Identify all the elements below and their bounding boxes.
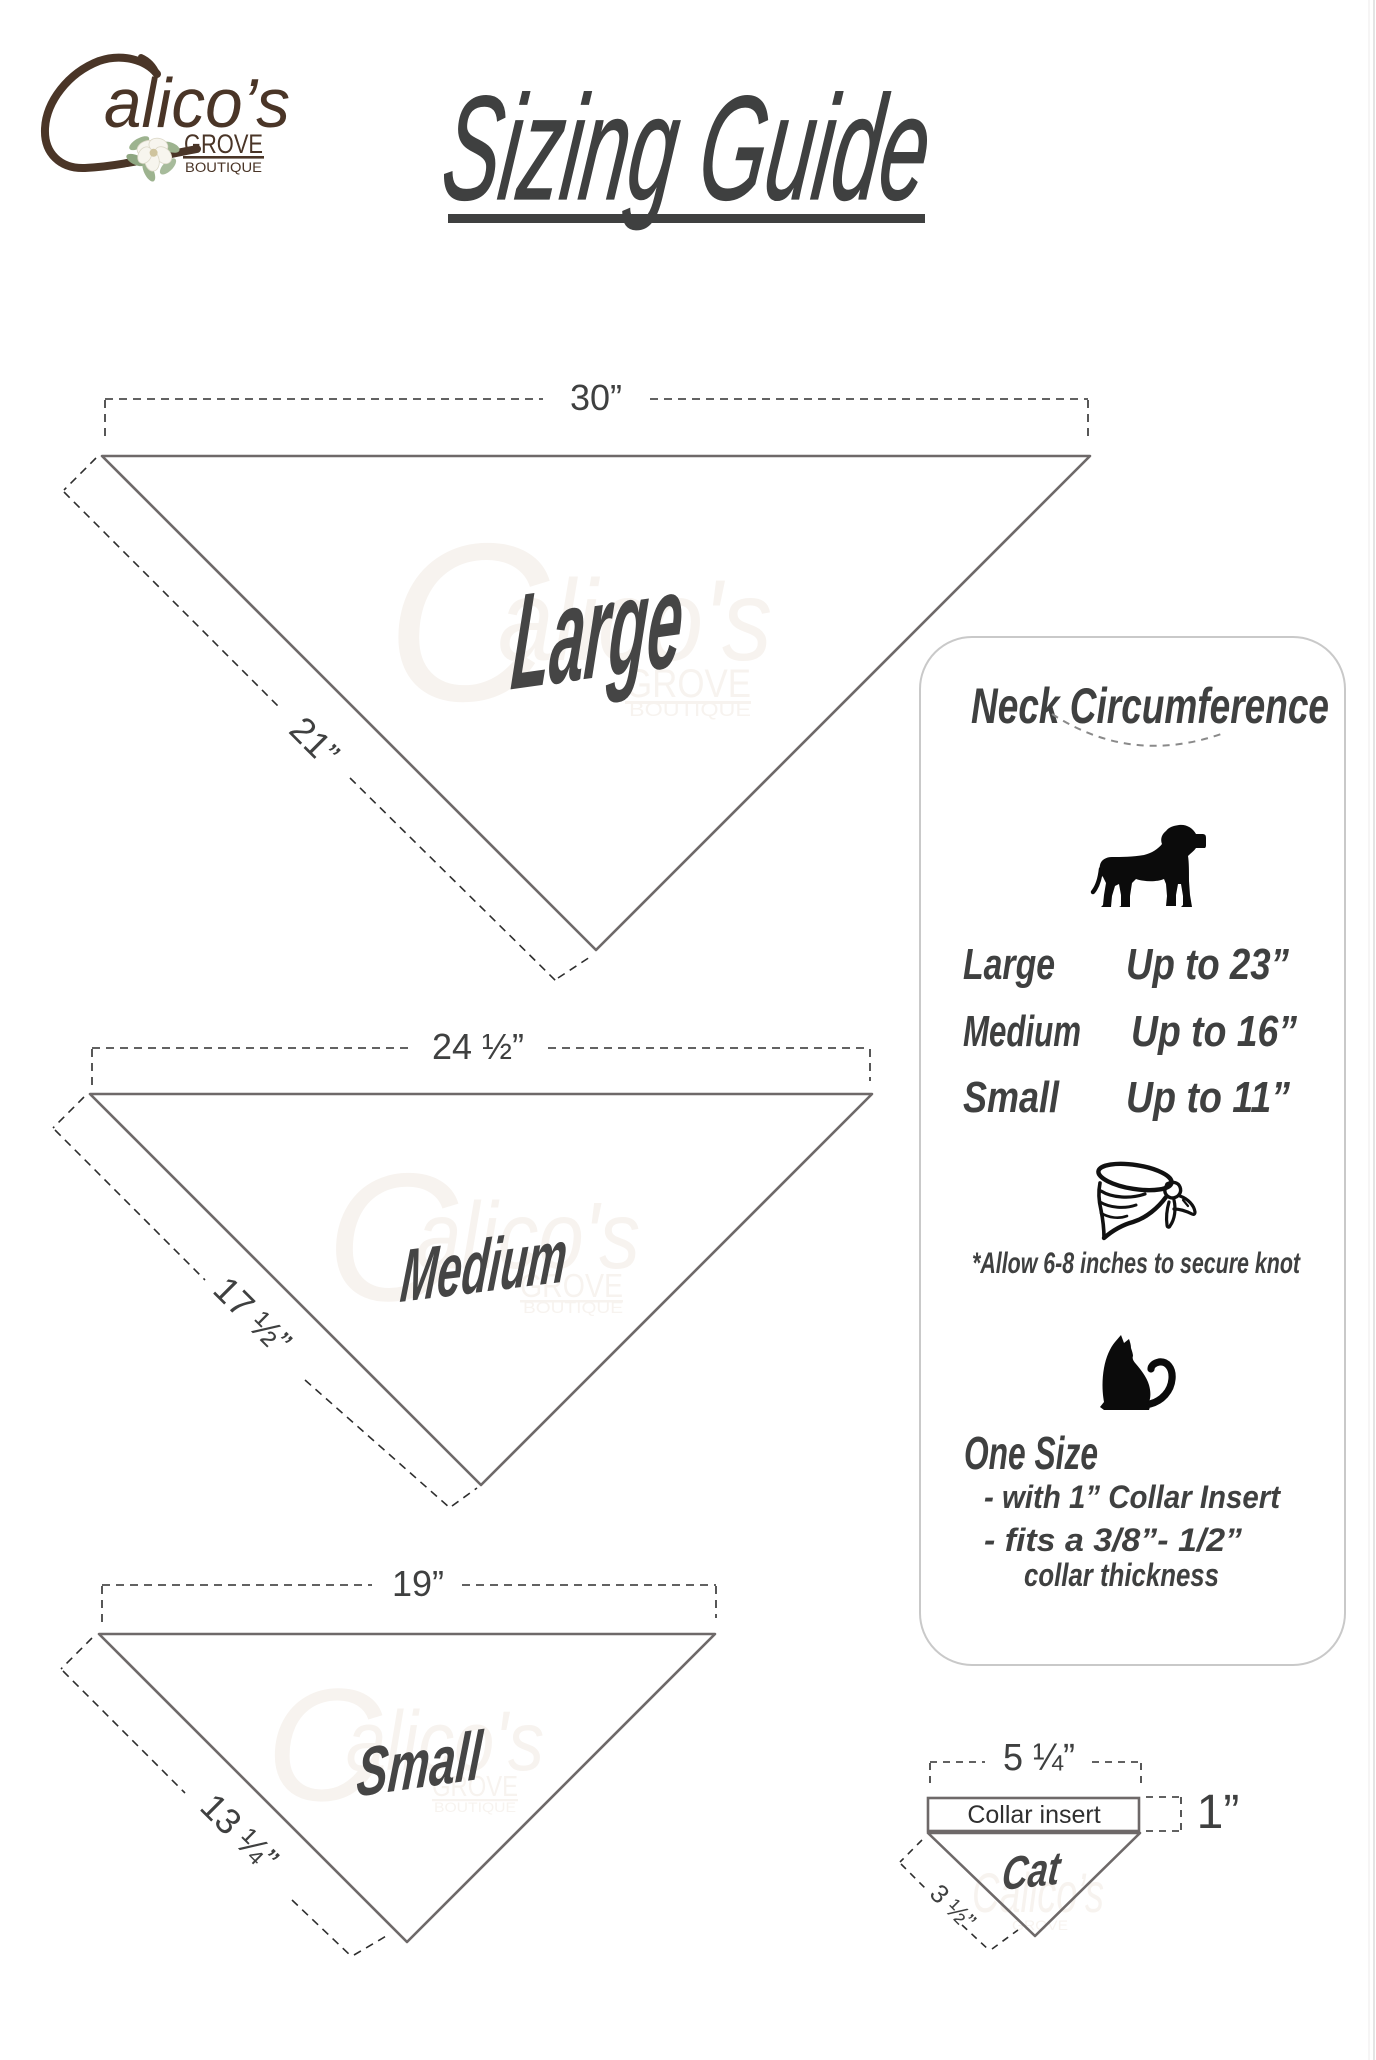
svg-text:- with 1” Collar Insert: - with 1” Collar Insert [984, 1479, 1281, 1515]
svg-text:GROVE: GROVE [184, 129, 263, 159]
svg-text:One Size: One Size [964, 1427, 1098, 1479]
svg-text:collar thickness: collar thickness [1024, 1557, 1219, 1593]
svg-text:Small: Small [963, 1073, 1060, 1122]
svg-text:Up to 16”: Up to 16” [1131, 1007, 1297, 1056]
svg-text:Up to 23”: Up to 23” [1126, 940, 1289, 989]
svg-text:30”: 30” [570, 377, 622, 418]
svg-text:- fits a 3/8”- 1/2”: - fits a 3/8”- 1/2” [984, 1522, 1242, 1558]
svg-text:1”: 1” [1197, 1786, 1240, 1839]
svg-text:Medium: Medium [963, 1007, 1081, 1056]
svg-text:Collar insert: Collar insert [967, 1801, 1100, 1829]
svg-text:Cat: Cat [1000, 1841, 1065, 1900]
svg-text:19”: 19” [392, 1563, 444, 1604]
svg-text:5 ¼”: 5 ¼” [1003, 1737, 1075, 1779]
svg-text:Up to 11”: Up to 11” [1126, 1073, 1290, 1122]
svg-text:Neck Circumference: Neck Circumference [971, 678, 1329, 734]
svg-text:Large: Large [507, 542, 688, 719]
svg-text:Sizing Guide: Sizing Guide [435, 66, 939, 230]
svg-text:*Allow 6-8 inches to secure kn: *Allow 6-8 inches to secure knot [972, 1247, 1301, 1280]
svg-text:24 ½”: 24 ½” [432, 1026, 524, 1067]
svg-text:Large: Large [963, 940, 1055, 989]
svg-text:BOUTIQUE: BOUTIQUE [185, 160, 262, 175]
